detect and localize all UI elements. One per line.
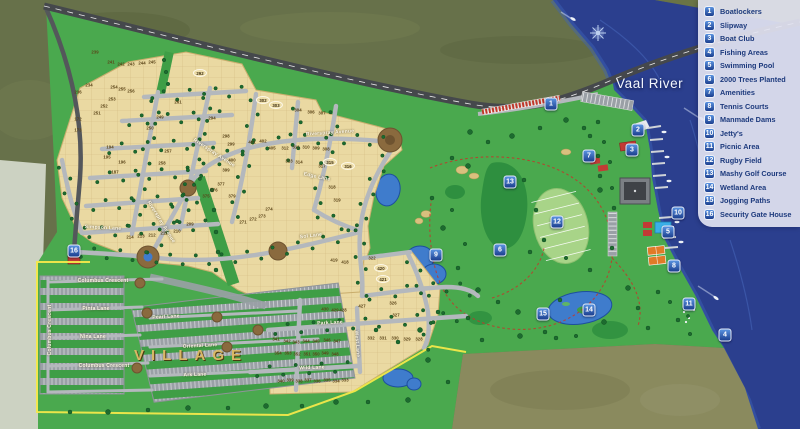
legend-label: Slipway xyxy=(720,21,747,30)
legend-label: Rugby Field xyxy=(720,156,762,165)
legend-label: Picnic Area xyxy=(720,142,759,151)
legend-badge-16: 16 xyxy=(704,209,715,220)
legend-label: Fishing Areas xyxy=(720,48,768,57)
legend-badge-14: 14 xyxy=(704,182,715,193)
legend-badge-11: 11 xyxy=(704,141,715,152)
legend-list: 1Boatlockers2Slipway3Boat Club4Fishing A… xyxy=(704,5,798,221)
estate-map-illustration xyxy=(0,0,800,429)
legend-badge-10: 10 xyxy=(704,128,715,139)
legend-item-11: 11Picnic Area xyxy=(704,140,798,154)
legend-item-5: 5Swimming Pool xyxy=(704,59,798,73)
legend-badge-12: 12 xyxy=(704,155,715,166)
legend-item-10: 10Jetty's xyxy=(704,127,798,141)
legend-label: Swimming Pool xyxy=(720,61,774,70)
legend-item-6: 62000 Trees Planted xyxy=(704,73,798,87)
legend-badge-3: 3 xyxy=(704,33,715,44)
clubhouse-building xyxy=(620,178,650,204)
legend-label: Mashy Golf Course xyxy=(720,169,787,178)
legend-item-1: 1Boatlockers xyxy=(704,5,798,19)
legend-label: Tennis Courts xyxy=(720,102,769,111)
legend-badge-2: 2 xyxy=(704,20,715,31)
legend-panel: 1Boatlockers2Slipway3Boat Club4Fishing A… xyxy=(698,0,800,227)
legend-item-15: 15Jogging Paths xyxy=(704,194,798,208)
legend-badge-1: 1 xyxy=(704,6,715,17)
legend-badge-4: 4 xyxy=(704,47,715,58)
legend-label: Manmade Dams xyxy=(720,115,776,124)
legend-label: Wetland Area xyxy=(720,183,766,192)
legend-item-9: 9Manmade Dams xyxy=(704,113,798,127)
swimming-pool xyxy=(655,222,671,233)
legend-item-8: 8Tennis Courts xyxy=(704,100,798,114)
village-title-label: VILLAGE xyxy=(134,347,248,364)
legend-label: Security Gate House xyxy=(720,210,791,219)
legend-badge-5: 5 xyxy=(704,60,715,71)
legend-item-13: 13Mashy Golf Course xyxy=(704,167,798,181)
legend-label: Boat Club xyxy=(720,34,754,43)
legend-badge-15: 15 xyxy=(704,195,715,206)
legend-item-12: 12Rugby Field xyxy=(704,154,798,168)
legend-badge-9: 9 xyxy=(704,114,715,125)
legend-item-4: 4Fishing Areas xyxy=(704,46,798,60)
legend-label: 2000 Trees Planted xyxy=(720,75,786,84)
legend-label: Jogging Paths xyxy=(720,196,770,205)
legend-badge-6: 6 xyxy=(704,74,715,85)
river-name-label: Vaal River xyxy=(616,76,683,91)
legend-label: Jetty's xyxy=(720,129,743,138)
legend-item-14: 14Wetland Area xyxy=(704,181,798,195)
legend-item-3: 3Boat Club xyxy=(704,32,798,46)
legend-item-16: 16Security Gate House xyxy=(704,208,798,222)
legend-label: Amenities xyxy=(720,88,755,97)
legend-badge-13: 13 xyxy=(704,168,715,179)
legend-badge-7: 7 xyxy=(704,87,715,98)
legend-item-7: 7Amenities xyxy=(704,86,798,100)
legend-label: Boatlockers xyxy=(720,7,762,16)
legend-item-2: 2Slipway xyxy=(704,19,798,33)
legend-badge-8: 8 xyxy=(704,101,715,112)
estate-map-page: Riverspray AvenueRiverspray AvenueRivers… xyxy=(0,0,800,429)
